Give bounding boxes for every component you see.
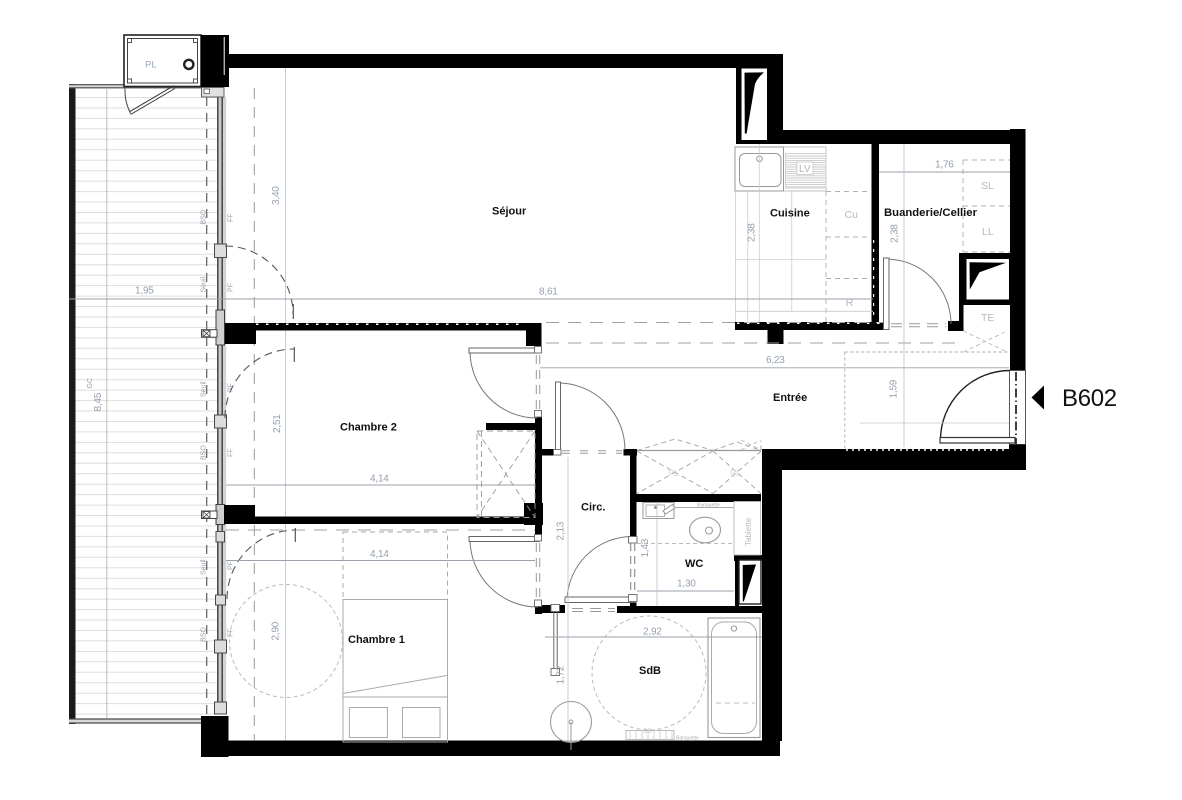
svg-text:1,95: 1,95 (135, 286, 154, 297)
svg-text:LL: LL (982, 226, 994, 238)
svg-text:Séjour: Séjour (492, 206, 527, 218)
svg-text:FF: FF (228, 213, 235, 222)
svg-text:Banquette: Banquette (697, 503, 720, 509)
svg-text:8,61: 8,61 (539, 287, 558, 298)
svg-text:Circ.: Circ. (581, 502, 605, 514)
svg-text:6,23: 6,23 (766, 355, 785, 366)
svg-text:Tablette: Tablette (744, 517, 753, 546)
svg-text:Chambre 2: Chambre 2 (340, 422, 397, 434)
svg-text:FF: FF (228, 628, 235, 637)
svg-text:1,43: 1,43 (640, 538, 651, 557)
svg-text:PF: PF (228, 383, 235, 392)
svg-text:1,30: 1,30 (677, 579, 696, 590)
svg-text:1,72: 1,72 (556, 665, 567, 684)
svg-text:8,45: 8,45 (93, 392, 104, 411)
svg-text:B602: B602 (1062, 385, 1117, 412)
svg-text:PF: PF (228, 283, 235, 292)
svg-text:LV: LV (799, 164, 811, 175)
svg-text:2,13: 2,13 (556, 521, 567, 540)
svg-text:PL: PL (730, 468, 741, 478)
svg-text:WC: WC (685, 558, 703, 570)
svg-text:2,90: 2,90 (271, 621, 282, 640)
svg-text:TE: TE (981, 312, 994, 324)
svg-text:2,51: 2,51 (272, 414, 283, 433)
svg-text:GC: GC (87, 378, 94, 389)
svg-text:3,40: 3,40 (271, 186, 282, 205)
svg-text:BSO: BSO (201, 627, 208, 642)
svg-text:SL: SL (981, 180, 994, 192)
svg-text:2,92: 2,92 (643, 627, 662, 638)
svg-text:PL: PL (145, 60, 157, 71)
svg-text:2,38: 2,38 (890, 224, 901, 243)
svg-text:1,76: 1,76 (935, 160, 954, 171)
svg-text:2,38: 2,38 (747, 223, 758, 242)
svg-text:Entrée: Entrée (773, 392, 807, 404)
svg-text:PL: PL (668, 468, 679, 478)
svg-text:BSO: BSO (201, 209, 208, 224)
svg-text:1,59: 1,59 (889, 379, 900, 398)
svg-text:BSO: BSO (201, 445, 208, 460)
svg-text:Seuil: Seuil (201, 381, 208, 397)
svg-text:Buanderie/Cellier: Buanderie/Cellier (884, 207, 978, 219)
svg-text:Seuil: Seuil (201, 276, 208, 292)
svg-text:Cuisine: Cuisine (770, 208, 810, 220)
svg-text:Seuil: Seuil (201, 559, 208, 575)
svg-text:4,14: 4,14 (370, 474, 389, 485)
svg-text:Banquette: Banquette (676, 736, 699, 742)
svg-text:FF: FF (228, 448, 235, 457)
svg-text:Chambre 1: Chambre 1 (348, 634, 405, 646)
svg-text:PF: PF (228, 561, 235, 570)
svg-text:SdB: SdB (639, 665, 661, 677)
svg-text:SS: SS (643, 728, 652, 735)
svg-text:R: R (846, 297, 854, 309)
svg-text:Cu: Cu (845, 209, 859, 221)
svg-text:4,14: 4,14 (370, 549, 389, 560)
